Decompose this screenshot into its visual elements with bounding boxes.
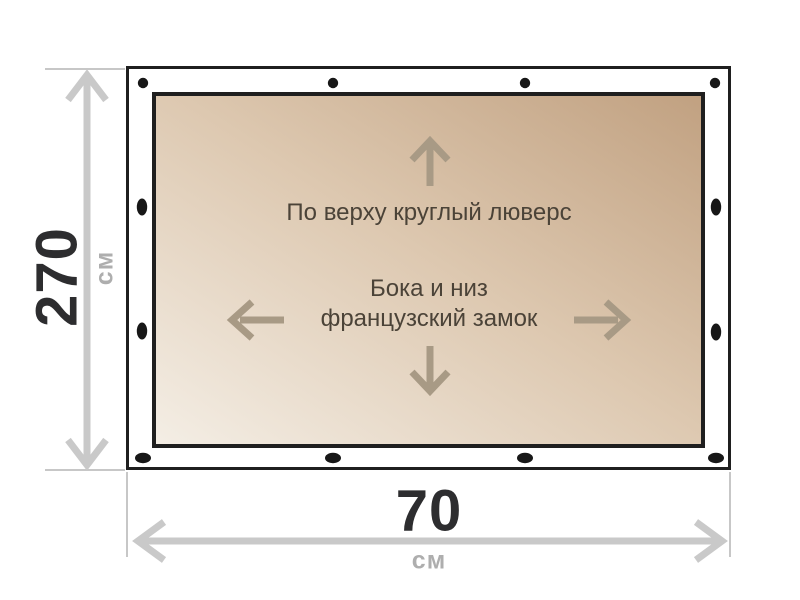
sides-bottom-note-line1: Бока и низ: [321, 274, 538, 304]
grommet-dot: [328, 78, 338, 88]
grommet-dot: [138, 78, 148, 88]
grommet-dot: [711, 324, 721, 341]
grommet-dot: [710, 78, 720, 88]
grommets: [135, 78, 724, 463]
up-arrow-icon: [412, 141, 448, 186]
grommet-dot: [711, 199, 721, 216]
left-arrow-icon: [232, 302, 284, 338]
grommet-dot: [135, 453, 151, 463]
width-dimension-unit: см: [412, 547, 446, 576]
grommet-dot: [520, 78, 530, 88]
surface-arrows: [232, 141, 626, 391]
top-edge-note: По верху круглый люверс: [286, 199, 571, 227]
width-dimension-value: 70: [396, 478, 463, 545]
grommet-dot: [325, 453, 341, 463]
sides-bottom-note: Бока и низ французский замок: [321, 274, 538, 334]
grommet-dot: [137, 323, 147, 340]
grommet-dot: [137, 199, 147, 216]
grommet-dot: [708, 453, 724, 463]
right-arrow-icon: [574, 302, 626, 338]
down-arrow-icon: [412, 346, 448, 391]
grommet-dot: [517, 453, 533, 463]
sides-bottom-note-line2: французский замок: [321, 304, 538, 334]
height-dimension-unit: см: [91, 251, 120, 285]
height-dimension-value: 270: [24, 227, 91, 327]
tarp-dimension-diagram: 270 см 70 см По верху круглый люверс Бок…: [0, 0, 800, 600]
